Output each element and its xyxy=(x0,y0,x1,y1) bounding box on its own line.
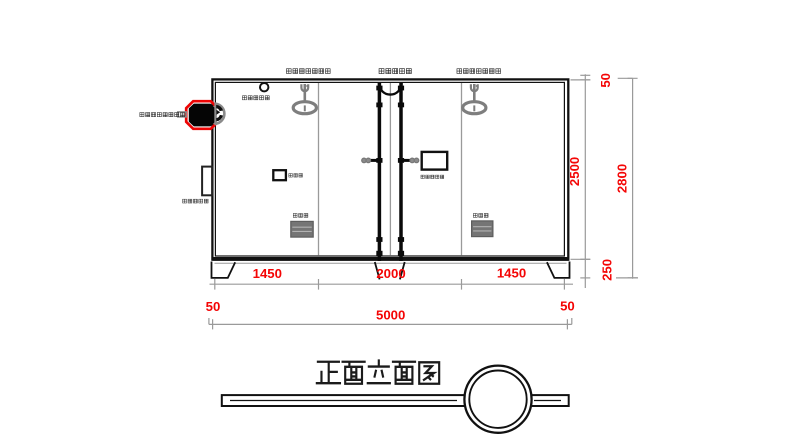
svg-text:50: 50 xyxy=(560,298,575,313)
svg-text:1450: 1450 xyxy=(497,265,526,280)
svg-text:2000: 2000 xyxy=(376,266,405,281)
svg-text:250: 250 xyxy=(599,259,614,281)
svg-text:2500: 2500 xyxy=(567,157,582,186)
svg-text:50: 50 xyxy=(598,73,613,88)
svg-text:5000: 5000 xyxy=(376,307,405,322)
svg-text:1450: 1450 xyxy=(253,266,282,281)
svg-text:50: 50 xyxy=(206,299,221,314)
svg-text:2800: 2800 xyxy=(614,164,629,193)
